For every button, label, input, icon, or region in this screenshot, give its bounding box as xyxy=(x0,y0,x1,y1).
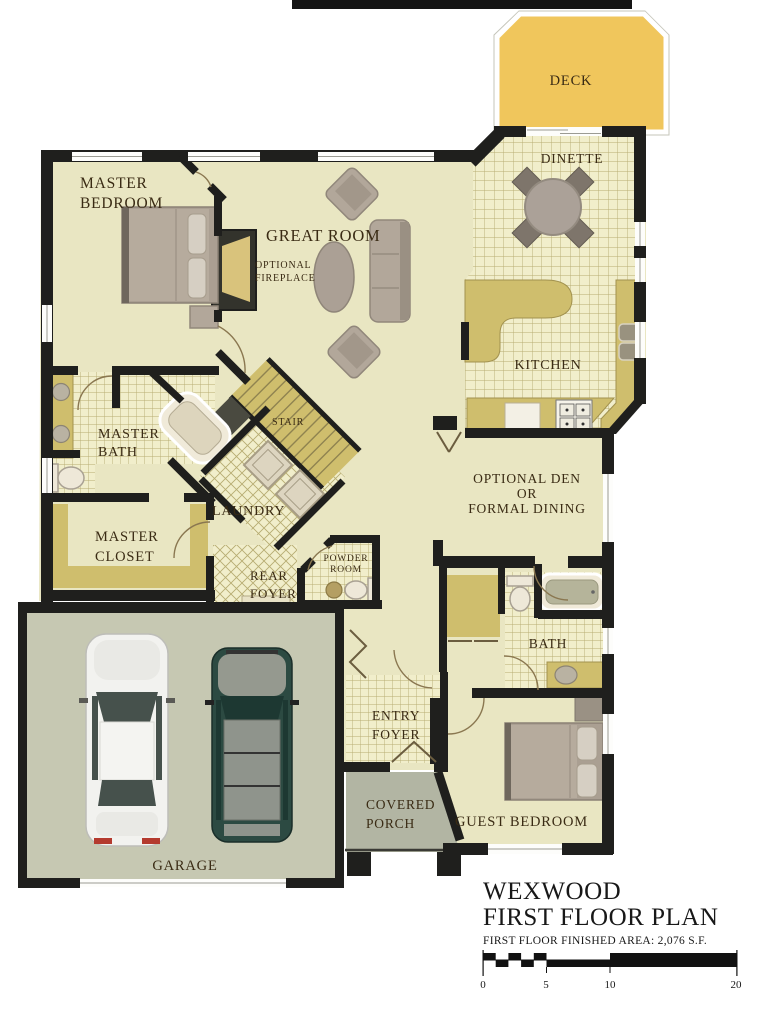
window xyxy=(318,152,434,161)
coffee-table xyxy=(314,242,354,312)
dishwasher xyxy=(505,403,540,429)
garage-floor xyxy=(20,604,342,886)
stair-label: STAIR xyxy=(272,417,304,428)
pedestal-sink xyxy=(326,582,342,598)
window xyxy=(42,305,52,342)
svg-text:BEDROOM: BEDROOM xyxy=(80,195,163,212)
great-room-label: GREAT ROOM xyxy=(266,226,381,245)
svg-text:ROOM: ROOM xyxy=(330,565,362,575)
master-bath-label: MASTER xyxy=(98,427,160,442)
svg-text:FIREPLACE: FIREPLACE xyxy=(255,273,316,284)
dresser xyxy=(575,697,603,721)
plan-name-title: WEXWOOD xyxy=(483,878,621,905)
bath-label: BATH xyxy=(529,636,567,651)
powder-room-label: POWDER xyxy=(324,554,369,564)
scale-bar: 0 5 10 20 xyxy=(480,950,742,991)
powder-fixtures xyxy=(326,578,378,602)
window xyxy=(42,458,52,493)
svg-text:FOYER: FOYER xyxy=(250,586,297,601)
svg-text:FOYER: FOYER xyxy=(372,727,420,742)
guest-tub xyxy=(540,574,604,610)
guest-bedroom-label: GUEST BEDROOM xyxy=(455,814,588,830)
title-block: WEXWOOD FIRST FLOOR PLAN FIRST FLOOR FIN… xyxy=(480,878,742,991)
sink xyxy=(555,666,577,684)
covered-porch-label: COVERED xyxy=(366,797,435,812)
area-note: FIRST FLOOR FINISHED AREA: 2,076 S.F. xyxy=(483,935,707,947)
sink xyxy=(53,384,70,401)
kitchen-label: KITCHEN xyxy=(514,358,581,373)
scale-tick-0: 0 xyxy=(480,979,486,991)
deck-label: DECK xyxy=(550,73,593,89)
pillow xyxy=(577,727,597,760)
toilet xyxy=(48,464,84,492)
car-sedan xyxy=(79,634,175,846)
nightstand xyxy=(190,306,218,328)
svg-text:PORCH: PORCH xyxy=(366,816,415,831)
laundry-label: LAUNDRY xyxy=(212,504,285,519)
window xyxy=(635,258,645,282)
floor-plan-drawing: DECK DINETTE MASTER BEDROOM GREAT ROOM O… xyxy=(0,0,758,1024)
entry-foyer-label: ENTRY xyxy=(372,708,420,723)
garage-label: GARAGE xyxy=(152,858,217,874)
svg-text:BATH: BATH xyxy=(98,445,138,460)
window xyxy=(603,714,613,754)
svg-text:OR: OR xyxy=(517,486,537,501)
master-closet-label: MASTER xyxy=(95,529,159,545)
optional-fireplace-label: OPTIONAL xyxy=(255,260,311,271)
sink xyxy=(53,426,70,443)
garage-door xyxy=(80,879,286,887)
top-crop-band xyxy=(292,0,632,9)
porch-pillar xyxy=(347,852,371,876)
optional-den-label: OPTIONAL DEN xyxy=(473,471,581,486)
window xyxy=(603,628,613,654)
master-bedroom-label: MASTER xyxy=(80,175,148,192)
dinette-table xyxy=(525,179,581,235)
dinette-set xyxy=(512,167,594,248)
pillow xyxy=(188,258,206,298)
window xyxy=(603,474,613,542)
floor-plan-sheet: DECK DINETTE MASTER BEDROOM GREAT ROOM O… xyxy=(0,0,758,1024)
car-suv xyxy=(205,648,299,842)
svg-text:CLOSET: CLOSET xyxy=(95,549,155,565)
guest-closet xyxy=(447,575,500,637)
window xyxy=(188,152,260,161)
window xyxy=(635,222,645,246)
svg-text:FORMAL DINING: FORMAL DINING xyxy=(468,501,586,516)
range xyxy=(556,400,592,431)
scale-tick-5: 5 xyxy=(543,979,549,991)
sliding-door xyxy=(526,127,602,136)
window xyxy=(488,844,562,854)
pillow xyxy=(188,214,206,254)
scale-tick-20: 20 xyxy=(731,979,743,991)
window xyxy=(635,322,645,358)
rear-foyer-label: REAR xyxy=(250,568,288,583)
window xyxy=(72,152,142,161)
porch-pillar xyxy=(437,852,461,876)
scale-tick-10: 10 xyxy=(605,979,617,991)
toilet xyxy=(507,576,533,611)
sheet-title: FIRST FLOOR PLAN xyxy=(483,904,718,931)
dinette-label: DINETTE xyxy=(541,151,604,166)
pillow xyxy=(577,764,597,797)
